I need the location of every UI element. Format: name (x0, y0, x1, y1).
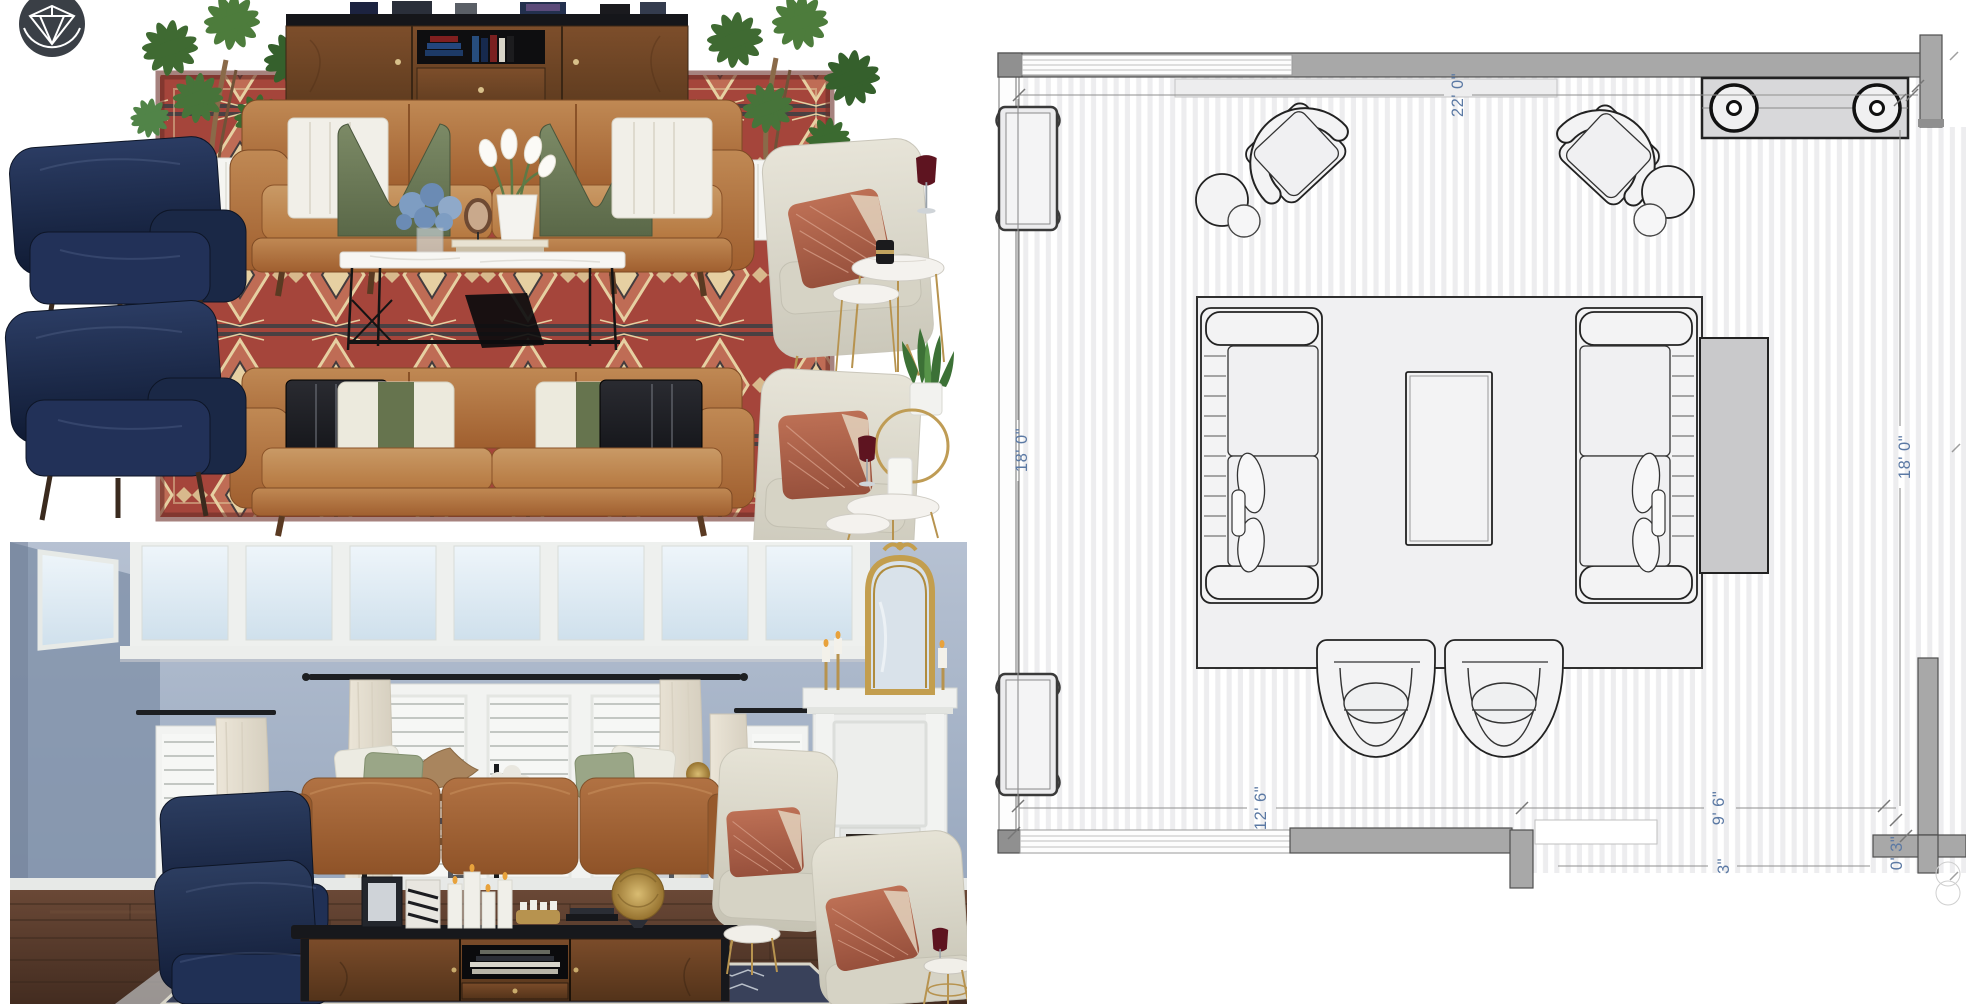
dim-bottom-right: 9' 6" (1710, 791, 1728, 825)
dim-bottom-left: 12' 6" (1252, 786, 1270, 830)
design-board-page: 22' 0" 18' 0" 18' 0" 12' 6" 9' 6" 0' 3" … (0, 0, 1966, 1004)
top-window (1022, 55, 1292, 75)
clerestory-windows (40, 542, 880, 662)
dim-right-wall-gap: 0' 3" (1888, 836, 1906, 870)
bottom-opening (1535, 820, 1657, 844)
bottom-window (1020, 830, 1290, 853)
tv-console-plan (1700, 338, 1768, 573)
media-console (291, 925, 739, 1001)
left-wall-window-top (997, 107, 1060, 230)
sofa-plan-left (1201, 308, 1322, 603)
dim-right-height: 18' 0" (1896, 435, 1914, 479)
floor-plan-diagram: 22' 0" 18' 0" 18' 0" 12' 6" 9' 6" 0' 3" … (995, 30, 1966, 910)
left-wall-window-bottom (997, 674, 1060, 795)
sofa-plan-right (1576, 308, 1697, 603)
living-room-render-image (10, 542, 967, 1004)
console-table-plan (1702, 78, 1908, 138)
moodboard-collage-image (0, 0, 965, 540)
right-wall-lower (1918, 658, 1938, 835)
coffee-table-plan (1406, 372, 1492, 545)
ivory-armchair-front (810, 828, 967, 1004)
curtain-rod (308, 674, 742, 680)
dim-left-height: 18' 0" (1013, 428, 1031, 472)
dim-bottom-partial: 3" (1715, 858, 1733, 874)
window-ledge (1175, 79, 1557, 97)
gold-arched-mirror (868, 542, 932, 692)
dim-top-width: 22' 0" (1449, 73, 1467, 117)
